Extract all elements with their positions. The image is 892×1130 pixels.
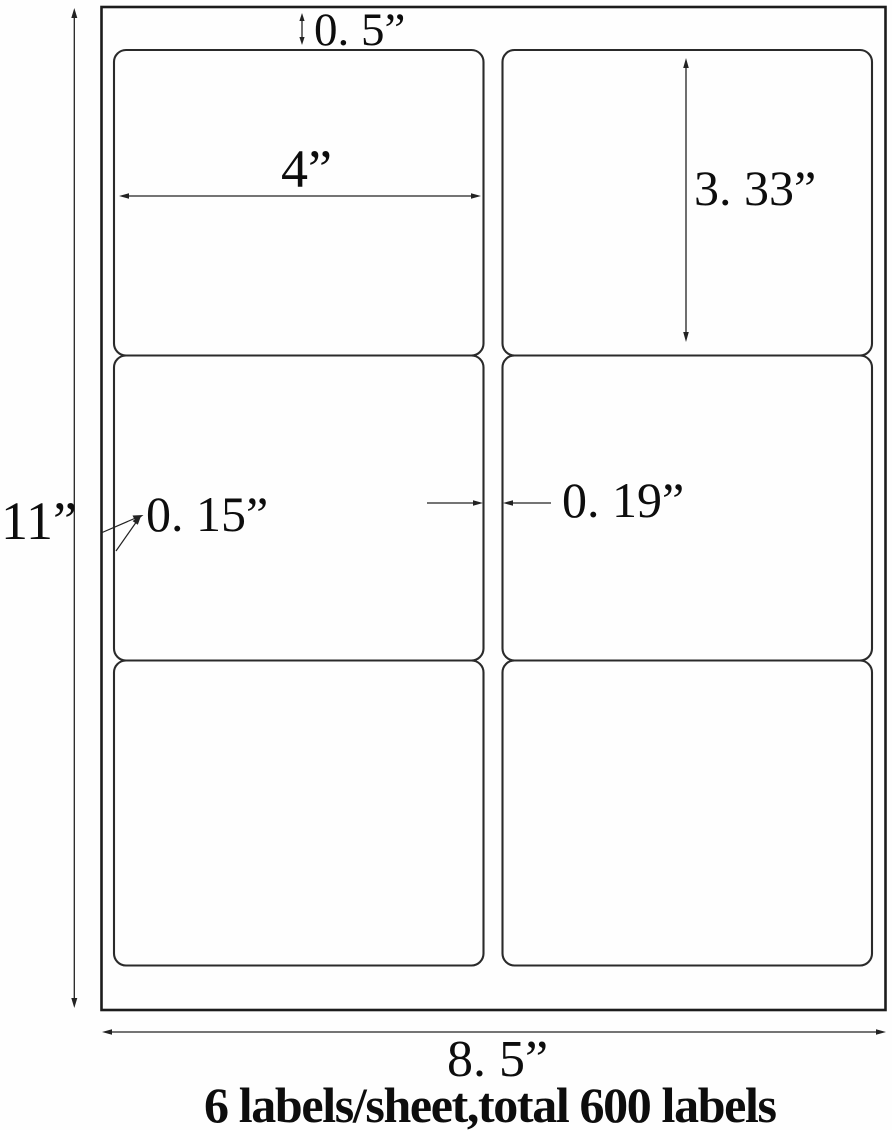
svg-text:4”: 4” [281, 139, 332, 199]
svg-text:0. 15”: 0. 15” [146, 486, 268, 542]
svg-text:0. 19”: 0. 19” [562, 472, 684, 528]
svg-text:11”: 11” [1, 491, 77, 551]
svg-text:6 labels/sheet,total 600 label: 6 labels/sheet,total 600 labels [204, 1077, 777, 1130]
svg-text:0. 5”: 0. 5” [314, 4, 405, 56]
svg-text:3. 33”: 3. 33” [694, 160, 816, 216]
